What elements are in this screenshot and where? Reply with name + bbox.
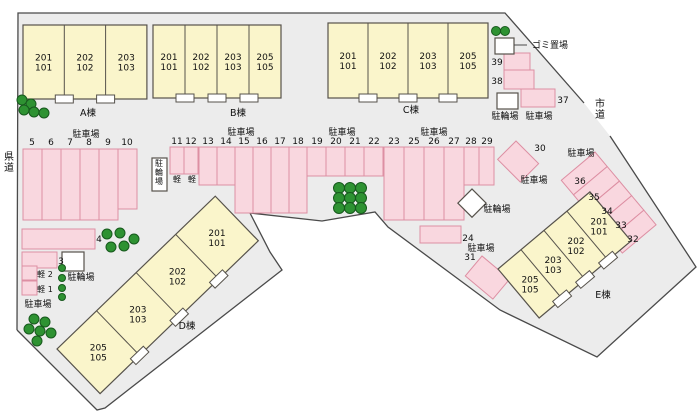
stall-number-20: 20 bbox=[330, 137, 342, 147]
stall-15 bbox=[235, 147, 253, 213]
stall-28 bbox=[464, 147, 479, 185]
tree-icon bbox=[345, 183, 356, 194]
kei-stall-label: 軽 2 bbox=[37, 270, 53, 279]
site-plan-svg: 201101202102203103A棟20110120210220310320… bbox=[0, 0, 700, 418]
bicycle-parking-label: 駐輪場 bbox=[155, 158, 163, 186]
tree-icon bbox=[19, 105, 29, 115]
stall-number-35: 35 bbox=[588, 193, 599, 203]
prefectural-road-label: 県道 bbox=[4, 151, 14, 174]
stall-16 bbox=[253, 147, 271, 213]
kei-stall-label: 軽 bbox=[188, 175, 196, 184]
building-B-entrance bbox=[208, 94, 226, 102]
stall-number-13: 13 bbox=[202, 137, 213, 147]
stall-number-21: 21 bbox=[349, 137, 360, 147]
unit-label-B-205: 205105 bbox=[256, 53, 273, 73]
stall-12 bbox=[184, 147, 198, 174]
unit-label-C-205: 205105 bbox=[459, 52, 476, 72]
tree-icon bbox=[492, 27, 501, 36]
stall-27 bbox=[444, 147, 464, 220]
tree-icon bbox=[24, 324, 34, 334]
stall-26 bbox=[424, 147, 444, 220]
tree-icon bbox=[40, 317, 50, 327]
building-A-entrance bbox=[55, 95, 73, 103]
building-D-name: D棟 bbox=[179, 320, 196, 332]
unit-label-D-201: 201101 bbox=[208, 229, 225, 249]
stall-number-22: 22 bbox=[368, 137, 379, 147]
building-A-name: A棟 bbox=[80, 107, 96, 119]
stall-39 bbox=[504, 53, 530, 70]
stall-number-10: 10 bbox=[121, 138, 133, 148]
building-B-name: B棟 bbox=[230, 107, 247, 119]
building-B-entrance bbox=[176, 94, 194, 102]
stall-21 bbox=[345, 147, 364, 176]
stall-17 bbox=[271, 147, 289, 213]
unit-label-D-205: 205105 bbox=[90, 344, 107, 364]
kei-stall-label: 軽 bbox=[173, 175, 181, 184]
stall-4 bbox=[22, 229, 95, 249]
stall-22 bbox=[364, 147, 383, 176]
unit-label-C-202: 202102 bbox=[379, 52, 396, 72]
unit-label-E-201: 201101 bbox=[590, 218, 607, 238]
unit-label-E-203: 203103 bbox=[544, 256, 561, 276]
tree-icon bbox=[356, 183, 367, 194]
tree-icon bbox=[29, 314, 39, 324]
stall-10 bbox=[118, 149, 137, 209]
unit-label-D-203: 203103 bbox=[129, 305, 146, 325]
stall-25 bbox=[404, 147, 424, 220]
stall-23 bbox=[384, 147, 404, 220]
stall-number-28: 28 bbox=[465, 137, 477, 147]
tree-icon bbox=[356, 203, 367, 214]
stall-19 bbox=[307, 147, 326, 176]
stall-number-30: 30 bbox=[534, 144, 546, 154]
tree-icon bbox=[102, 229, 112, 239]
tree-icon bbox=[35, 326, 45, 336]
stall-number-26: 26 bbox=[428, 137, 440, 147]
stall-number-23: 23 bbox=[388, 137, 399, 147]
stall-number-39: 39 bbox=[491, 58, 503, 68]
bicycle-parking-label: 駐輪場 bbox=[483, 203, 510, 215]
stall-37 bbox=[521, 89, 555, 107]
stall-number-4: 4 bbox=[96, 235, 102, 245]
tree-icon bbox=[334, 203, 345, 214]
stall-number-36: 36 bbox=[574, 177, 586, 187]
tree-icon bbox=[345, 203, 356, 214]
tree-icon bbox=[345, 193, 356, 204]
tree-icon bbox=[29, 107, 39, 117]
stall-number-31: 31 bbox=[464, 253, 475, 263]
stall-number-11: 11 bbox=[171, 137, 182, 147]
tree-icon bbox=[501, 27, 510, 36]
stall-kei-2 bbox=[22, 266, 37, 280]
stall-number-24: 24 bbox=[462, 234, 474, 244]
unit-label-D-202: 202102 bbox=[169, 267, 186, 287]
tree-icon bbox=[115, 228, 125, 238]
stall-38 bbox=[504, 70, 534, 89]
stall-20 bbox=[326, 147, 345, 176]
tree-icon bbox=[59, 294, 66, 301]
stall-29 bbox=[479, 147, 494, 185]
parking-lot-label: 駐車場 bbox=[227, 126, 254, 138]
building-B-entrance bbox=[240, 94, 258, 102]
unit-label-C-201: 201101 bbox=[339, 52, 356, 72]
stall-number-29: 29 bbox=[481, 137, 493, 147]
tree-icon bbox=[46, 328, 56, 338]
stall-14 bbox=[217, 147, 235, 185]
stall-number-34: 34 bbox=[601, 207, 613, 217]
building-C-entrance bbox=[439, 94, 457, 102]
parking-lot-label: 駐車場 bbox=[24, 298, 51, 310]
stall-11 bbox=[170, 147, 184, 174]
tree-icon bbox=[17, 95, 27, 105]
parking-lot-label: 駐車場 bbox=[525, 110, 552, 122]
stall-number-25: 25 bbox=[408, 137, 419, 147]
stall-number-19: 19 bbox=[311, 137, 323, 147]
stall-number-27: 27 bbox=[448, 137, 459, 147]
stall-number-37: 37 bbox=[557, 96, 568, 106]
stall-24 bbox=[420, 226, 461, 243]
tree-icon bbox=[32, 336, 42, 346]
parking-lot-label: 駐車場 bbox=[328, 126, 355, 138]
stall-number-5: 5 bbox=[29, 138, 35, 148]
stall-number-9: 9 bbox=[105, 138, 111, 148]
building-C-entrance bbox=[399, 94, 417, 102]
bicycle-parking-label: 駐輪場 bbox=[491, 110, 518, 122]
unit-label-E-205: 205105 bbox=[521, 275, 538, 295]
stall-8 bbox=[80, 149, 99, 220]
building-A-entrance bbox=[97, 95, 115, 103]
building-C-name: C棟 bbox=[403, 104, 420, 116]
site-plan-map: 201101202102203103A棟20110120210220310320… bbox=[0, 0, 700, 418]
stall-13 bbox=[199, 147, 217, 185]
unit-label-E-202: 202102 bbox=[567, 237, 584, 257]
stall-kei-1 bbox=[22, 281, 37, 295]
tree-icon bbox=[59, 285, 66, 292]
city-road-label: 市道 bbox=[595, 97, 605, 121]
parking-lot-label: 駐車場 bbox=[72, 128, 99, 140]
parking-lot-label: 駐車場 bbox=[567, 147, 594, 159]
stall-number-17: 17 bbox=[274, 137, 285, 147]
tree-icon bbox=[334, 183, 345, 194]
stall-number-32: 32 bbox=[627, 235, 638, 245]
building-C-entrance bbox=[359, 94, 377, 102]
bicycle-box-topright bbox=[497, 93, 518, 109]
tree-icon bbox=[119, 241, 129, 251]
stall-number-33: 33 bbox=[615, 221, 626, 231]
garbage-box bbox=[495, 38, 514, 54]
unit-label-B-203: 203103 bbox=[224, 53, 241, 73]
stall-number-16: 16 bbox=[256, 137, 268, 147]
tree-icon bbox=[59, 275, 66, 282]
unit-label-A-201: 201101 bbox=[35, 54, 52, 74]
stall-number-3: 3 bbox=[58, 257, 64, 267]
stall-number-6: 6 bbox=[48, 138, 54, 148]
building-E-name: E棟 bbox=[595, 289, 611, 301]
stall-number-38: 38 bbox=[491, 77, 503, 87]
parking-lot-label: 駐車場 bbox=[420, 126, 447, 138]
kei-stall-label: 軽 1 bbox=[37, 285, 53, 294]
unit-label-B-201: 201101 bbox=[160, 53, 177, 73]
unit-label-C-203: 203103 bbox=[419, 52, 436, 72]
tree-icon bbox=[129, 234, 139, 244]
stall-7 bbox=[61, 149, 80, 220]
parking-lot-label: 駐車場 bbox=[467, 242, 494, 254]
stall-9 bbox=[99, 149, 118, 220]
stall-6 bbox=[42, 149, 61, 220]
stall-18 bbox=[289, 147, 307, 213]
garbage-area-label: ゴミ置場 bbox=[532, 39, 568, 51]
tree-icon bbox=[39, 108, 49, 118]
bicycle-parking-label: 駐輪場 bbox=[67, 271, 94, 283]
stall-number-12: 12 bbox=[185, 137, 196, 147]
stall-number-18: 18 bbox=[292, 137, 304, 147]
tree-icon bbox=[106, 242, 116, 252]
tree-icon bbox=[334, 193, 345, 204]
stall-number-14: 14 bbox=[220, 137, 232, 147]
unit-label-A-203: 203103 bbox=[118, 54, 135, 74]
tree-icon bbox=[356, 193, 367, 204]
stall-number-15: 15 bbox=[238, 137, 249, 147]
unit-label-B-202: 202102 bbox=[192, 53, 209, 73]
stall-5 bbox=[23, 149, 42, 220]
unit-label-A-202: 202102 bbox=[76, 54, 93, 74]
parking-lot-label: 駐車場 bbox=[520, 174, 547, 186]
